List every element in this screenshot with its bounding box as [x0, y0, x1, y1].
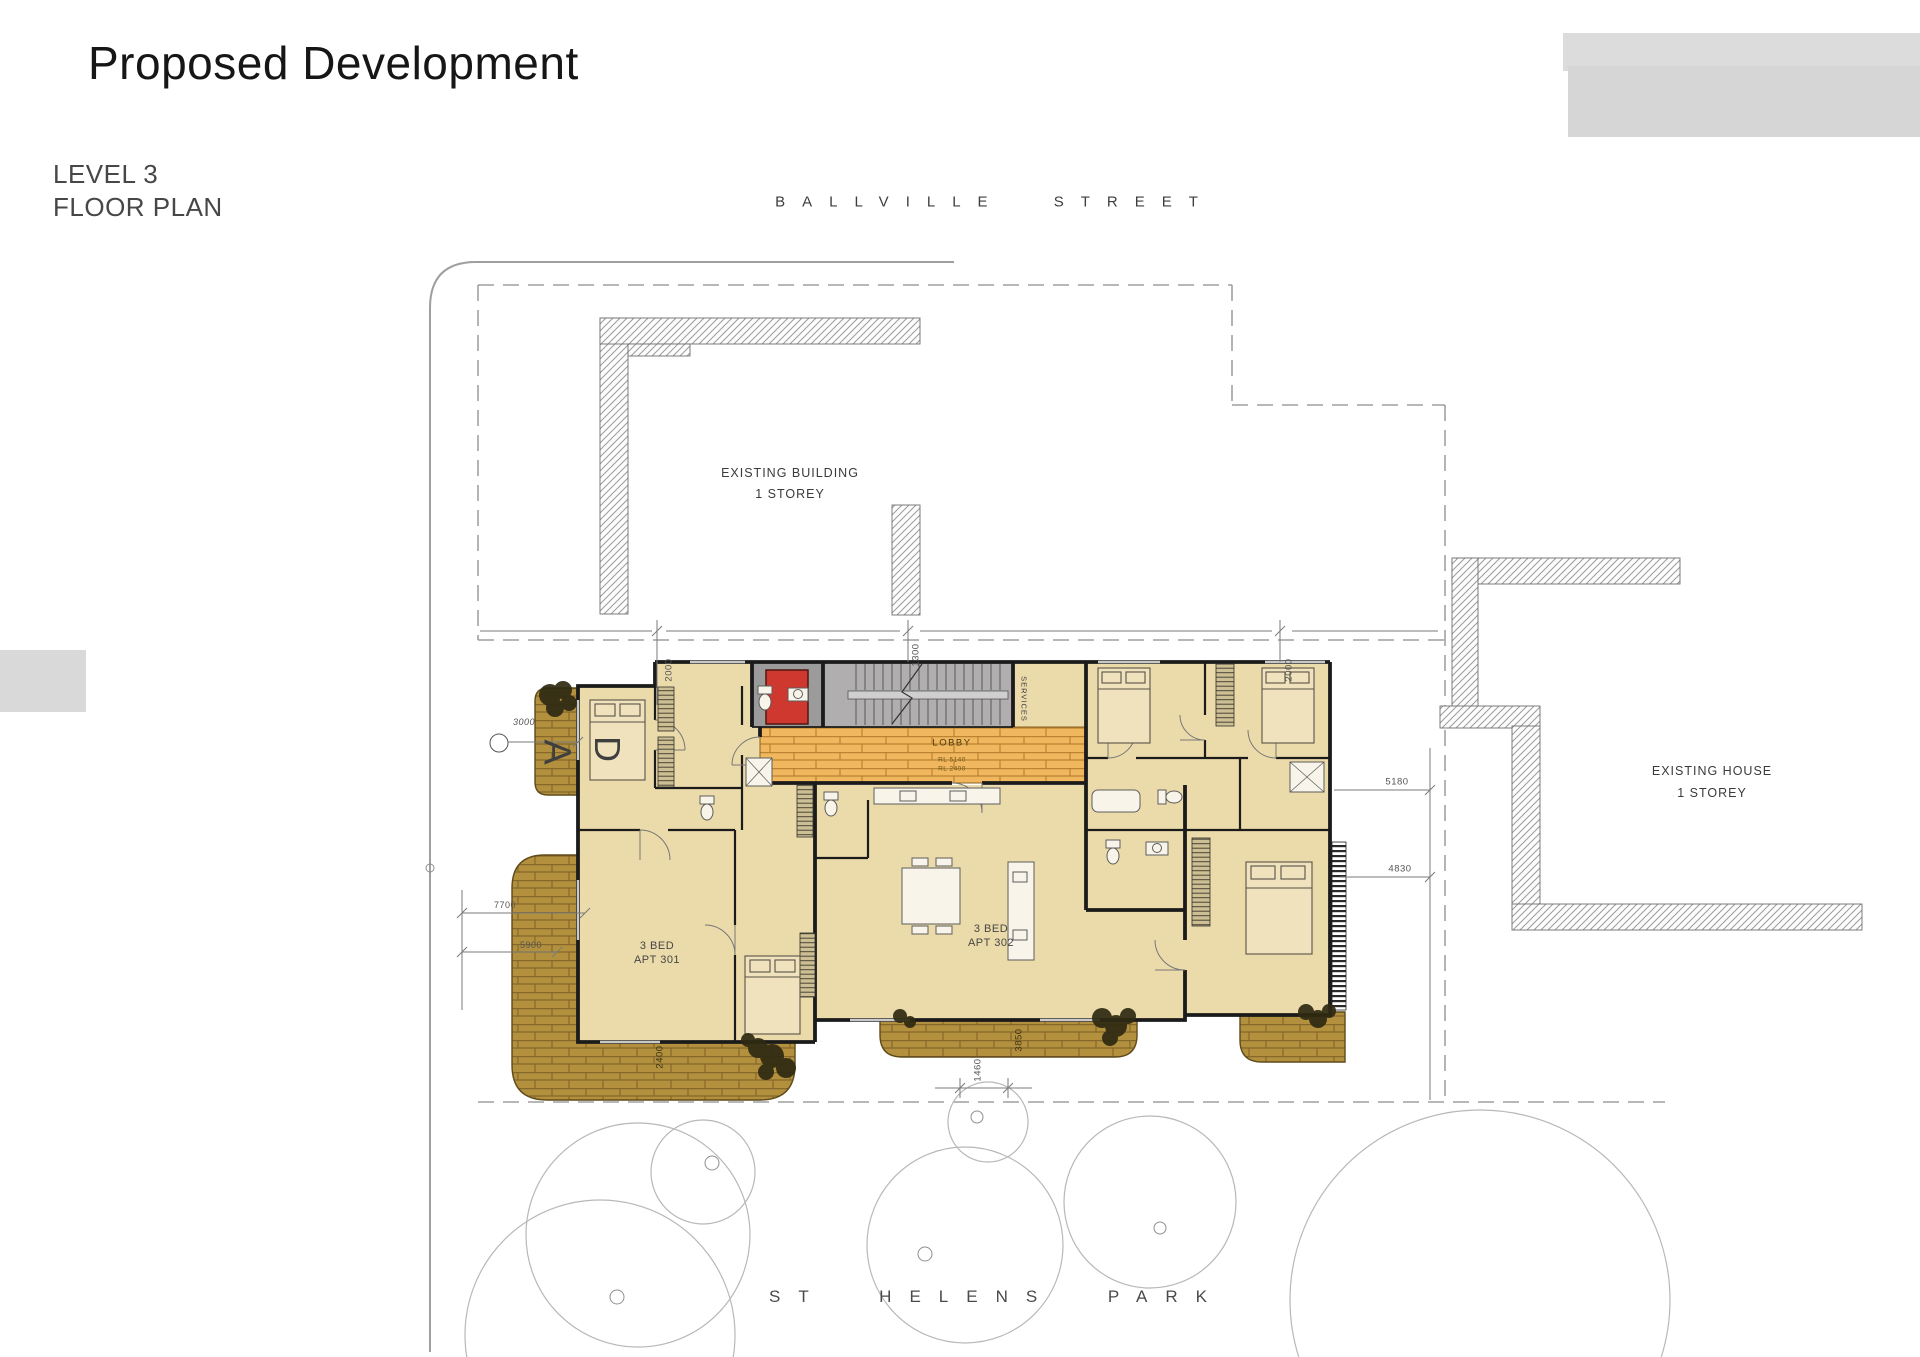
apt-301-label: 3 BED APT 301 — [634, 939, 680, 967]
dim-bottom-left: 2400 — [655, 1045, 666, 1068]
floor-plan-page: Proposed Development LEVEL 3 FLOOR PLAN … — [0, 0, 1920, 1357]
shower — [1290, 762, 1324, 792]
drawing-label: LEVEL 3 FLOOR PLAN — [53, 158, 223, 224]
dim-right-lower: 4830 — [1388, 864, 1411, 875]
apt-301-beds: 3 BED — [634, 939, 680, 953]
street-label: BALLVILLE STREET — [775, 194, 1215, 211]
lobby-corridor — [760, 727, 1086, 783]
park-label: ST HELENS PARK — [769, 1287, 1225, 1307]
drawing-label-type: FLOOR PLAN — [53, 191, 223, 224]
services-label: SERVICES — [1020, 676, 1029, 722]
toilet — [1158, 790, 1182, 804]
toilet — [700, 796, 714, 820]
dim-left-mid: 7700 — [494, 900, 516, 910]
dim-top-center: 1300 — [911, 643, 922, 666]
apt-302-label: 3 BED APT 302 — [968, 922, 1014, 950]
apt-302-number: APT 302 — [968, 936, 1014, 950]
grid-marker-d: D — [586, 736, 628, 762]
lobby-label: LOBBY — [932, 738, 971, 749]
louvre-screen — [1332, 842, 1346, 1010]
dim-left-upper: 3000 — [513, 717, 535, 727]
vanity — [1146, 842, 1168, 855]
tree-trunk-markers — [610, 1111, 1166, 1304]
existing-building-label-line2: 1 STOREY — [755, 487, 825, 501]
kitchen-counter — [874, 788, 1000, 804]
dim-bottom-balcony: 3850 — [1014, 1028, 1025, 1051]
toilet — [824, 792, 838, 816]
drawing-label-level: LEVEL 3 — [53, 158, 223, 191]
dim-top-left: 2000 — [664, 658, 675, 681]
existing-building-label-line1: EXISTING BUILDING — [721, 466, 859, 480]
lobby-rl-level-1: RL 5140 — [938, 757, 966, 764]
dim-top-right: 2000 — [1284, 658, 1295, 681]
toilet — [1106, 840, 1120, 864]
page-title: Proposed Development — [88, 36, 579, 90]
dim-left-lower: 5900 — [520, 940, 542, 950]
toilet — [758, 686, 772, 710]
tree-canopies — [465, 1082, 1670, 1357]
apt-302-beds: 3 BED — [968, 922, 1014, 936]
existing-house-walls — [1440, 558, 1862, 930]
dim-bottom-gap: 1460 — [973, 1058, 984, 1081]
grid-marker-a: A — [535, 739, 578, 764]
existing-house-label-line1: EXISTING HOUSE — [1652, 764, 1772, 778]
bath-tub — [1092, 790, 1140, 812]
lobby-rl-level-2: RL 2400 — [938, 766, 966, 773]
stair-handrail — [848, 691, 1008, 699]
dim-right-upper: 5180 — [1385, 777, 1408, 788]
existing-house-label-line2: 1 STOREY — [1677, 786, 1747, 800]
shower — [746, 758, 772, 786]
dining-table — [902, 858, 960, 934]
apt-301-number: APT 301 — [634, 953, 680, 967]
balcony-bottom-right — [1240, 1012, 1345, 1062]
vanity — [788, 688, 808, 701]
